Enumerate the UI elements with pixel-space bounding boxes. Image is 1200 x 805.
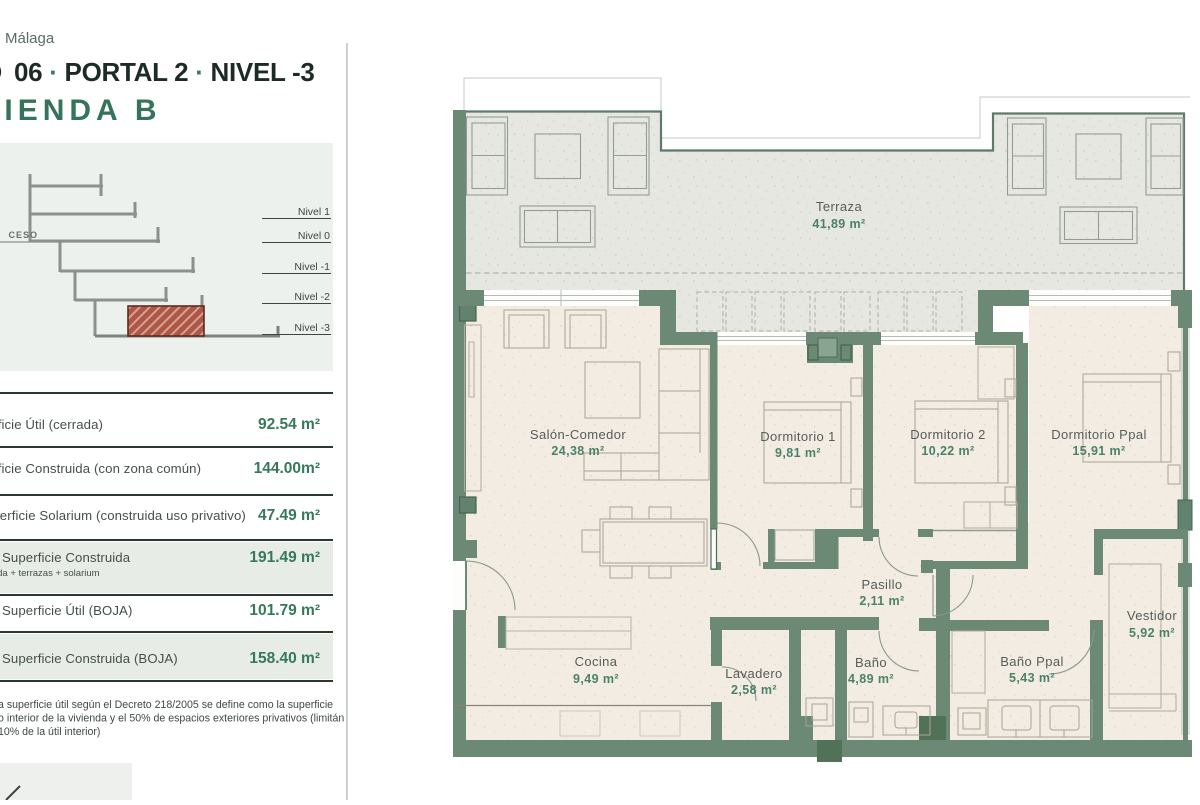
svg-text:5,43 m²: 5,43 m² — [1009, 671, 1055, 685]
svg-text:Nivel -1: Nivel -1 — [294, 261, 330, 273]
svg-text:VIVIENDA B: VIVIENDA B — [0, 94, 162, 127]
svg-text:Superficie Construida: Superficie Construida — [2, 550, 131, 565]
svg-text:191.49 m²: 191.49 m² — [249, 549, 320, 566]
svg-text:Cocina: Cocina — [575, 654, 618, 669]
svg-text:10,22 m²: 10,22 m² — [921, 444, 974, 458]
svg-text:Superficie Construida (BOJA): Superficie Construida (BOJA) — [2, 651, 178, 666]
svg-text:92.54 m²: 92.54 m² — [258, 416, 320, 433]
svg-text:ida + terrazas + solarium: ida + terrazas + solarium — [0, 568, 100, 579]
svg-text:Nivel 1: Nivel 1 — [298, 206, 330, 218]
svg-text:Dormitorio 1: Dormitorio 1 — [760, 429, 836, 444]
svg-text:15,91 m²: 15,91 m² — [1072, 444, 1125, 458]
svg-text:o interior de la vivienda y el: o interior de la vivienda y el 50% de es… — [0, 713, 344, 725]
svg-text:2,11 m²: 2,11 m² — [859, 594, 904, 608]
svg-text:Superficie Útil (cerrada): Superficie Útil (cerrada) — [0, 417, 103, 432]
svg-text:Málaga: Málaga — [5, 30, 55, 47]
svg-text:Superficie Útil (BOJA): Superficie Útil (BOJA) — [2, 603, 132, 618]
svg-text:24,38 m²: 24,38 m² — [551, 444, 604, 458]
svg-text:41,89 m²: 41,89 m² — [812, 217, 865, 231]
svg-text:47.49 m²: 47.49 m² — [258, 507, 320, 524]
svg-text:Dormitorio 2: Dormitorio 2 — [910, 427, 986, 442]
svg-text:Salón-Comedor: Salón-Comedor — [530, 427, 627, 442]
svg-text:06 · PORTAL 2 · NIVEL -3: 06 · PORTAL 2 · NIVEL -3 — [14, 57, 315, 87]
svg-text:9,49 m²: 9,49 m² — [573, 672, 619, 686]
svg-text:Dormitorio Ppal: Dormitorio Ppal — [1051, 427, 1147, 442]
svg-text:2,58 m²: 2,58 m² — [731, 683, 777, 697]
svg-text:Vestidor: Vestidor — [1127, 608, 1177, 623]
svg-text:Baño: Baño — [855, 655, 887, 670]
svg-text:Nivel -3: Nivel -3 — [294, 322, 330, 334]
svg-text:Pasillo: Pasillo — [861, 577, 902, 592]
svg-text:101.79 m²: 101.79 m² — [249, 602, 320, 619]
svg-text:144.00m²: 144.00m² — [254, 460, 320, 477]
svg-text:10% de la útil interior): 10% de la útil interior) — [0, 726, 100, 738]
svg-text:5,92 m²: 5,92 m² — [1129, 626, 1175, 640]
svg-text:Nivel 0: Nivel 0 — [298, 230, 330, 242]
svg-text:Superficie Construida (con zon: Superficie Construida (con zona común) — [0, 461, 201, 476]
svg-text:Q: Q — [0, 57, 2, 87]
svg-text:4,89 m²: 4,89 m² — [848, 672, 894, 686]
svg-text:9,81 m²: 9,81 m² — [775, 446, 821, 460]
svg-text:Superficie Solarium (construid: Superficie Solarium (construida uso priv… — [0, 508, 246, 523]
svg-text:Terraza: Terraza — [816, 199, 863, 214]
svg-text:a superficie útil según el Dec: a superficie útil según el Decreto 218/2… — [0, 699, 333, 711]
svg-text:158.40 m²: 158.40 m² — [249, 650, 320, 667]
svg-text:Baño Ppal: Baño Ppal — [1000, 654, 1064, 669]
svg-text:Nivel -2: Nivel -2 — [294, 291, 330, 303]
svg-text:Lavadero: Lavadero — [725, 666, 782, 681]
svg-text:CESO: CESO — [8, 230, 38, 240]
